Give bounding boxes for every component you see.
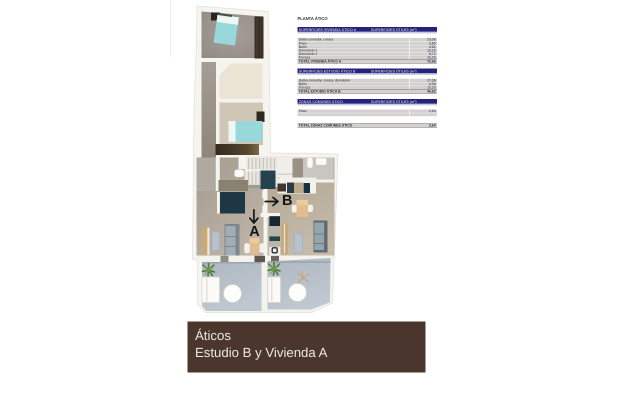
svg-text:2,64: 2,64	[429, 124, 436, 128]
svg-text:SUPERFICIES ÚTILES (m²): SUPERFICIES ÚTILES (m²)	[371, 99, 417, 104]
svg-text:PLANTA ÁTICO: PLANTA ÁTICO	[298, 16, 329, 21]
svg-text:TOTAL ESTUDIO ÁTICO B: TOTAL ESTUDIO ÁTICO B	[299, 89, 341, 93]
svg-text:B: B	[282, 193, 292, 209]
svg-text:ZONAS COMUNES ÁTICO: ZONAS COMUNES ÁTICO	[299, 99, 343, 104]
svg-text:72,66: 72,66	[427, 59, 436, 63]
svg-text:Áticos: Áticos	[195, 328, 231, 343]
svg-text:TOTAL VIVIENDA ÁTICO A: TOTAL VIVIENDA ÁTICO A	[299, 59, 342, 63]
svg-text:TOTAL ZONAS COMUNES ÁTICO: TOTAL ZONAS COMUNES ÁTICO	[299, 124, 353, 128]
svg-text:2,64: 2,64	[429, 109, 436, 113]
svg-text:SUPERFICIES ÚTILES (m²): SUPERFICIES ÚTILES (m²)	[371, 27, 417, 32]
svg-text:46,62: 46,62	[427, 89, 436, 93]
svg-text:SUPERFICIES ESTUDIO ÁTICO B: SUPERFICIES ESTUDIO ÁTICO B	[299, 68, 356, 73]
svg-text:SUPERFICIES ÚTILES (m²): SUPERFICIES ÚTILES (m²)	[371, 68, 417, 73]
svg-text:SUPERFICIES VIVIENDA ÁTICO A: SUPERFICIES VIVIENDA ÁTICO A	[299, 27, 357, 32]
svg-text:Paso: Paso	[299, 109, 307, 113]
svg-text:Estudio B y Vivienda A: Estudio B y Vivienda A	[195, 345, 328, 360]
svg-text:A: A	[249, 224, 260, 240]
